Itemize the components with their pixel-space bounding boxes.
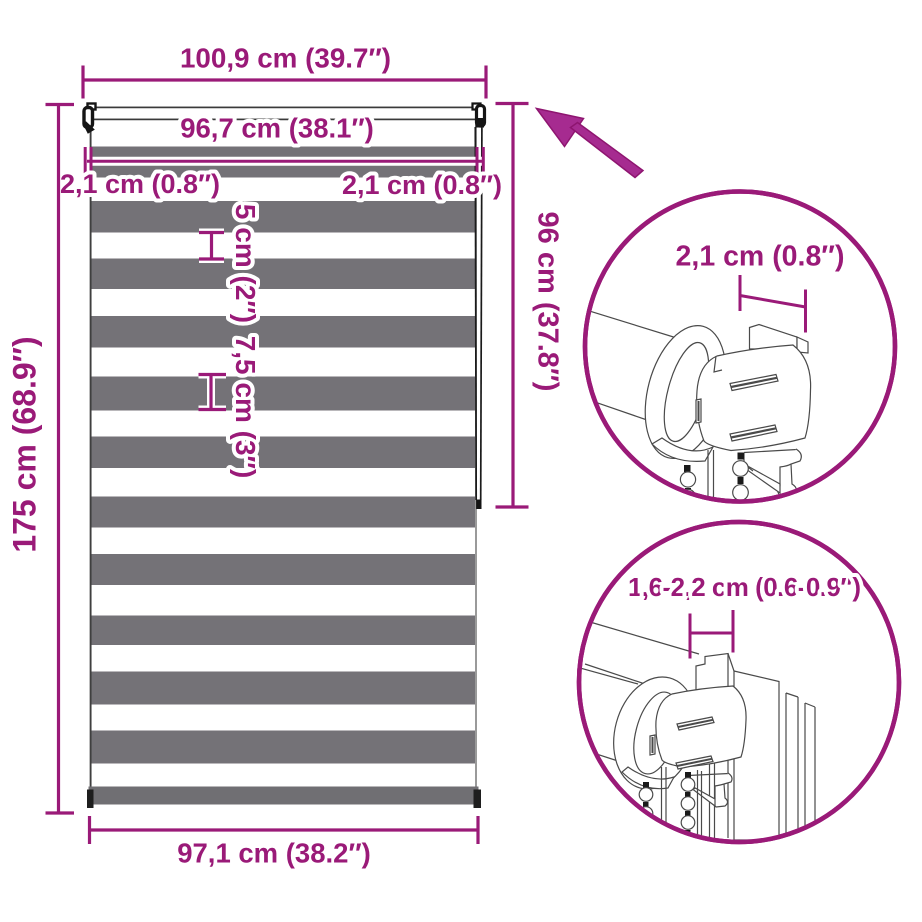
svg-text:2,1 cm (0.8″): 2,1 cm (0.8″) [60, 169, 220, 199]
svg-text:96 cm (37.8″): 96 cm (37.8″) [532, 212, 564, 392]
svg-text:175 cm (68.9″): 175 cm (68.9″) [7, 336, 43, 552]
svg-text:7,5 cm (3″): 7,5 cm (3″) [230, 336, 261, 479]
svg-text:2,1 cm (0.8″): 2,1 cm (0.8″) [342, 170, 502, 200]
svg-text:5 cm (2″): 5 cm (2″) [230, 204, 261, 323]
svg-text:96,7 cm (38.1″): 96,7 cm (38.1″) [180, 113, 374, 144]
svg-text:2,1 cm (0.8″): 2,1 cm (0.8″) [676, 241, 845, 273]
svg-text:97,1 cm (38.2″): 97,1 cm (38.2″) [177, 838, 371, 869]
svg-text:100,9 cm (39.7″): 100,9 cm (39.7″) [180, 43, 391, 74]
svg-text:1,6-2,2 cm (0.6-0.9″): 1,6-2,2 cm (0.6-0.9″) [628, 572, 861, 602]
